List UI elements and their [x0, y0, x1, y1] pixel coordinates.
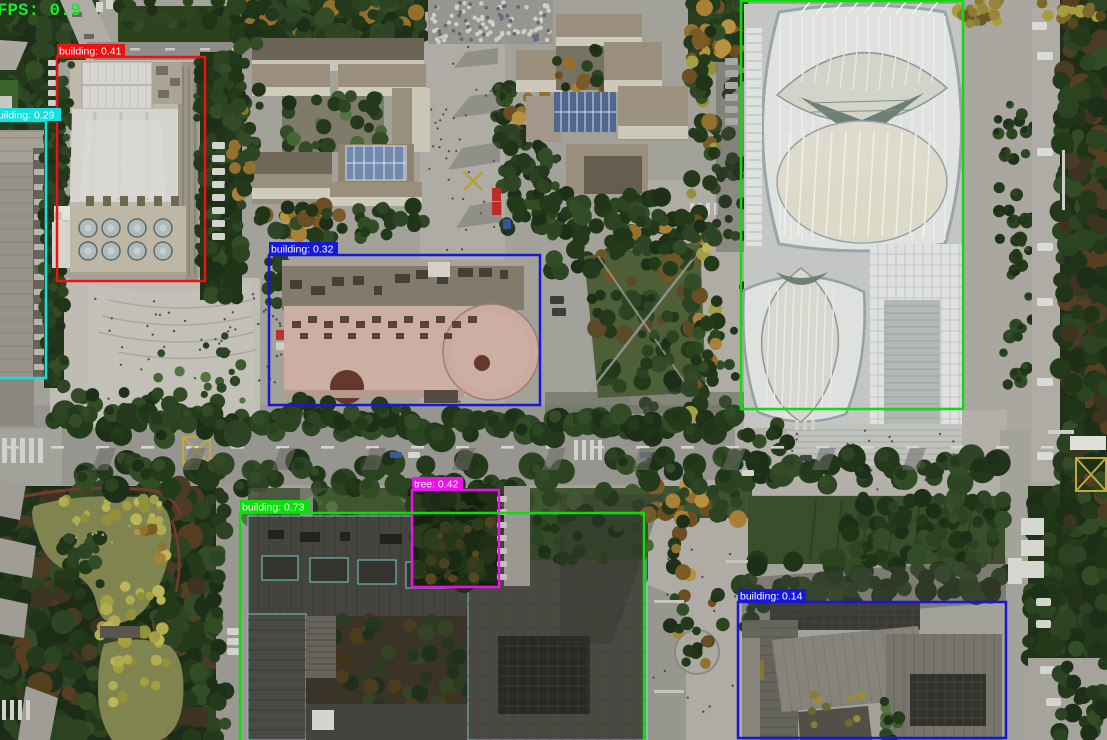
svg-text:building: 0.29: building: 0.29	[0, 110, 55, 122]
svg-text:building: 0.32: building: 0.32	[271, 244, 334, 256]
svg-text:FPS: 0.9: FPS: 0.9	[0, 1, 81, 21]
svg-text:building: 0.14: building: 0.14	[740, 591, 803, 603]
svg-text:building: 0.73: building: 0.73	[242, 502, 305, 514]
svg-text:tree: 0.42: tree: 0.42	[414, 479, 459, 491]
svg-text:building: 0.41: building: 0.41	[59, 46, 122, 58]
